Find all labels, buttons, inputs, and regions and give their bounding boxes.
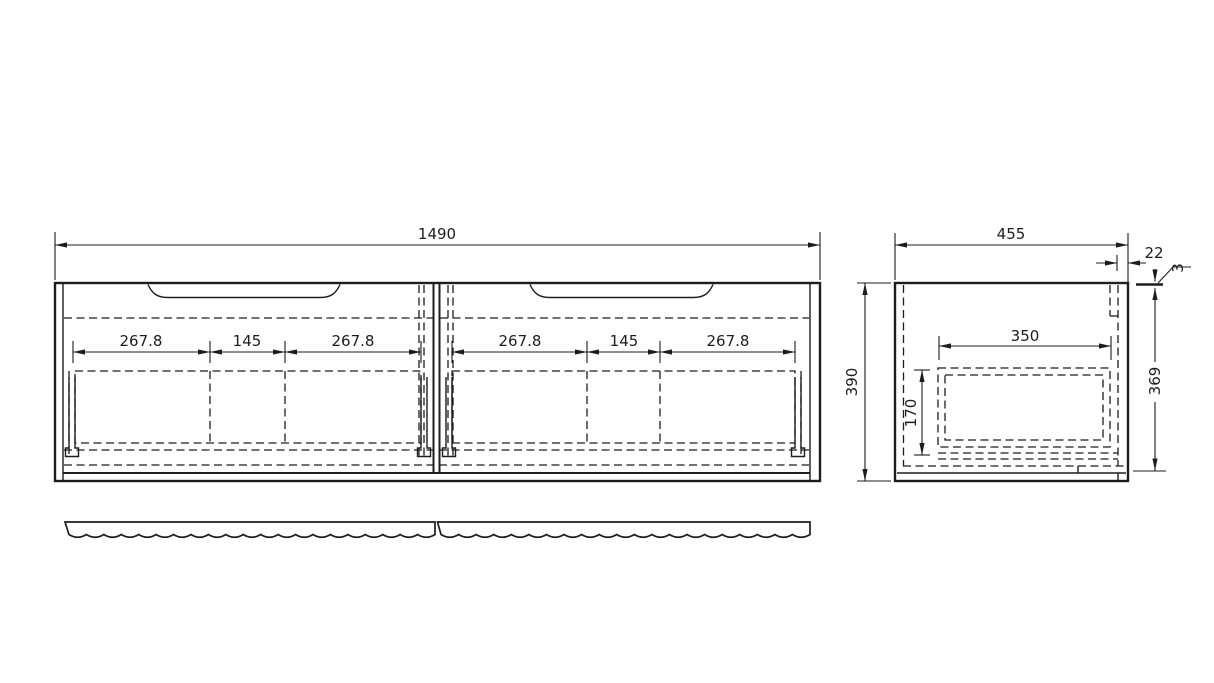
dim-label-350: 350 bbox=[1011, 327, 1040, 345]
dim-drawer-depth: 350 bbox=[939, 327, 1111, 360]
dim-label-455: 455 bbox=[997, 225, 1026, 243]
plan-left-door bbox=[65, 522, 435, 537]
dim-left-door-chain: 267.8 145 267.8 bbox=[73, 332, 421, 363]
dim-inner-height: 369 bbox=[1133, 288, 1166, 471]
dim-back-rail-offset: 22 bbox=[1096, 244, 1164, 271]
cabinet-technical-drawing-page: 1490 267.8 145 267.8 267.8 145 267.8 bbox=[0, 0, 1214, 683]
hidden-right-drawer-box bbox=[452, 371, 795, 443]
dim-label-left-seg2: 145 bbox=[233, 332, 262, 350]
dim-label-right-seg2: 145 bbox=[610, 332, 639, 350]
dim-right-door-chain: 267.8 145 267.8 bbox=[452, 332, 795, 363]
dim-label-1490: 1490 bbox=[418, 225, 456, 243]
dim-label-170: 170 bbox=[902, 399, 920, 428]
dim-label-right-seg3: 267.8 bbox=[707, 332, 750, 350]
dim-overall-height: 390 bbox=[843, 283, 891, 481]
right-door-handle-recess bbox=[530, 285, 713, 298]
dim-front-overall-width: 1490 bbox=[55, 225, 820, 280]
dim-label-left-seg1: 267.8 bbox=[120, 332, 163, 350]
side-outline bbox=[895, 283, 1128, 481]
side-view bbox=[895, 283, 1128, 481]
cabinet-technical-drawing: 1490 267.8 145 267.8 267.8 145 267.8 bbox=[0, 0, 1214, 683]
dim-side-depth: 455 bbox=[895, 225, 1128, 290]
front-view bbox=[55, 283, 820, 481]
dim-label-left-seg3: 267.8 bbox=[332, 332, 375, 350]
left-door-handle-recess bbox=[148, 285, 340, 298]
plan-view-fluted-doors bbox=[65, 522, 810, 537]
foot-bracket-right bbox=[792, 377, 805, 457]
front-outline bbox=[55, 283, 820, 481]
dim-drawer-height: 170 bbox=[902, 370, 930, 455]
dim-top-gap: 3 bbox=[1136, 263, 1191, 284]
hidden-drawer-inner bbox=[945, 375, 1103, 440]
foot-bracket-left bbox=[66, 377, 79, 457]
dim-label-22: 22 bbox=[1144, 244, 1163, 262]
dim-label-3: 3 bbox=[1169, 263, 1187, 273]
dim-label-390: 390 bbox=[843, 368, 861, 397]
dim-label-369: 369 bbox=[1146, 367, 1164, 396]
hidden-left-drawer-box bbox=[75, 371, 421, 443]
plan-right-door bbox=[438, 522, 811, 537]
hidden-drawer-outer bbox=[938, 368, 1110, 447]
dim-label-right-seg1: 267.8 bbox=[499, 332, 542, 350]
